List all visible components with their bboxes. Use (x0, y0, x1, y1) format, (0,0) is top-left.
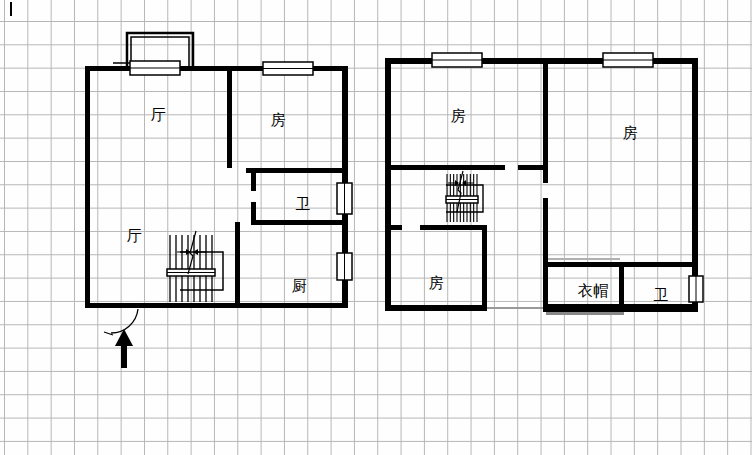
room-label: 卫 (654, 286, 669, 304)
room-label: 房 (451, 107, 466, 125)
room-label: 厨 (292, 277, 307, 295)
room-label: 房 (429, 274, 444, 292)
wall-segment (251, 220, 348, 225)
door-swing-arc (111, 309, 138, 333)
floorplan-drawing: 厅房卫厅厨房房房衣帽卫 (0, 0, 752, 455)
room-label: 衣帽 (577, 282, 608, 300)
wall-segment (487, 307, 545, 309)
wall-segment (385, 58, 391, 311)
wall-segment (251, 173, 256, 191)
wall-segment (85, 66, 90, 308)
wall-segment (85, 303, 345, 308)
wall-segment (227, 71, 232, 168)
wall-segment (692, 58, 698, 311)
wall-segment (543, 198, 548, 305)
arrowhead (115, 329, 133, 346)
wall-segment (235, 222, 240, 308)
wall-segment (543, 304, 698, 312)
graph-paper-canvas: 厅房卫厅厨房房房衣帽卫 (0, 0, 752, 455)
room-label: 厅 (127, 227, 142, 245)
wall-segment (385, 305, 487, 311)
wall-segment (546, 312, 624, 315)
caret-mark (10, 2, 12, 16)
wall-segment (246, 168, 348, 173)
wall-segment (121, 346, 127, 368)
room-label: 房 (271, 111, 286, 129)
room-label: 房 (623, 124, 638, 142)
wall-segment (390, 225, 402, 230)
wall-segment (518, 165, 543, 170)
wall-segment (420, 225, 487, 230)
wall-segment (619, 262, 624, 305)
wall-segment (543, 64, 548, 183)
wall-segment (390, 165, 505, 170)
wall-segment (548, 258, 620, 260)
room-label: 卫 (296, 195, 311, 213)
wall-segment (482, 225, 487, 305)
room-label: 厅 (151, 106, 166, 124)
